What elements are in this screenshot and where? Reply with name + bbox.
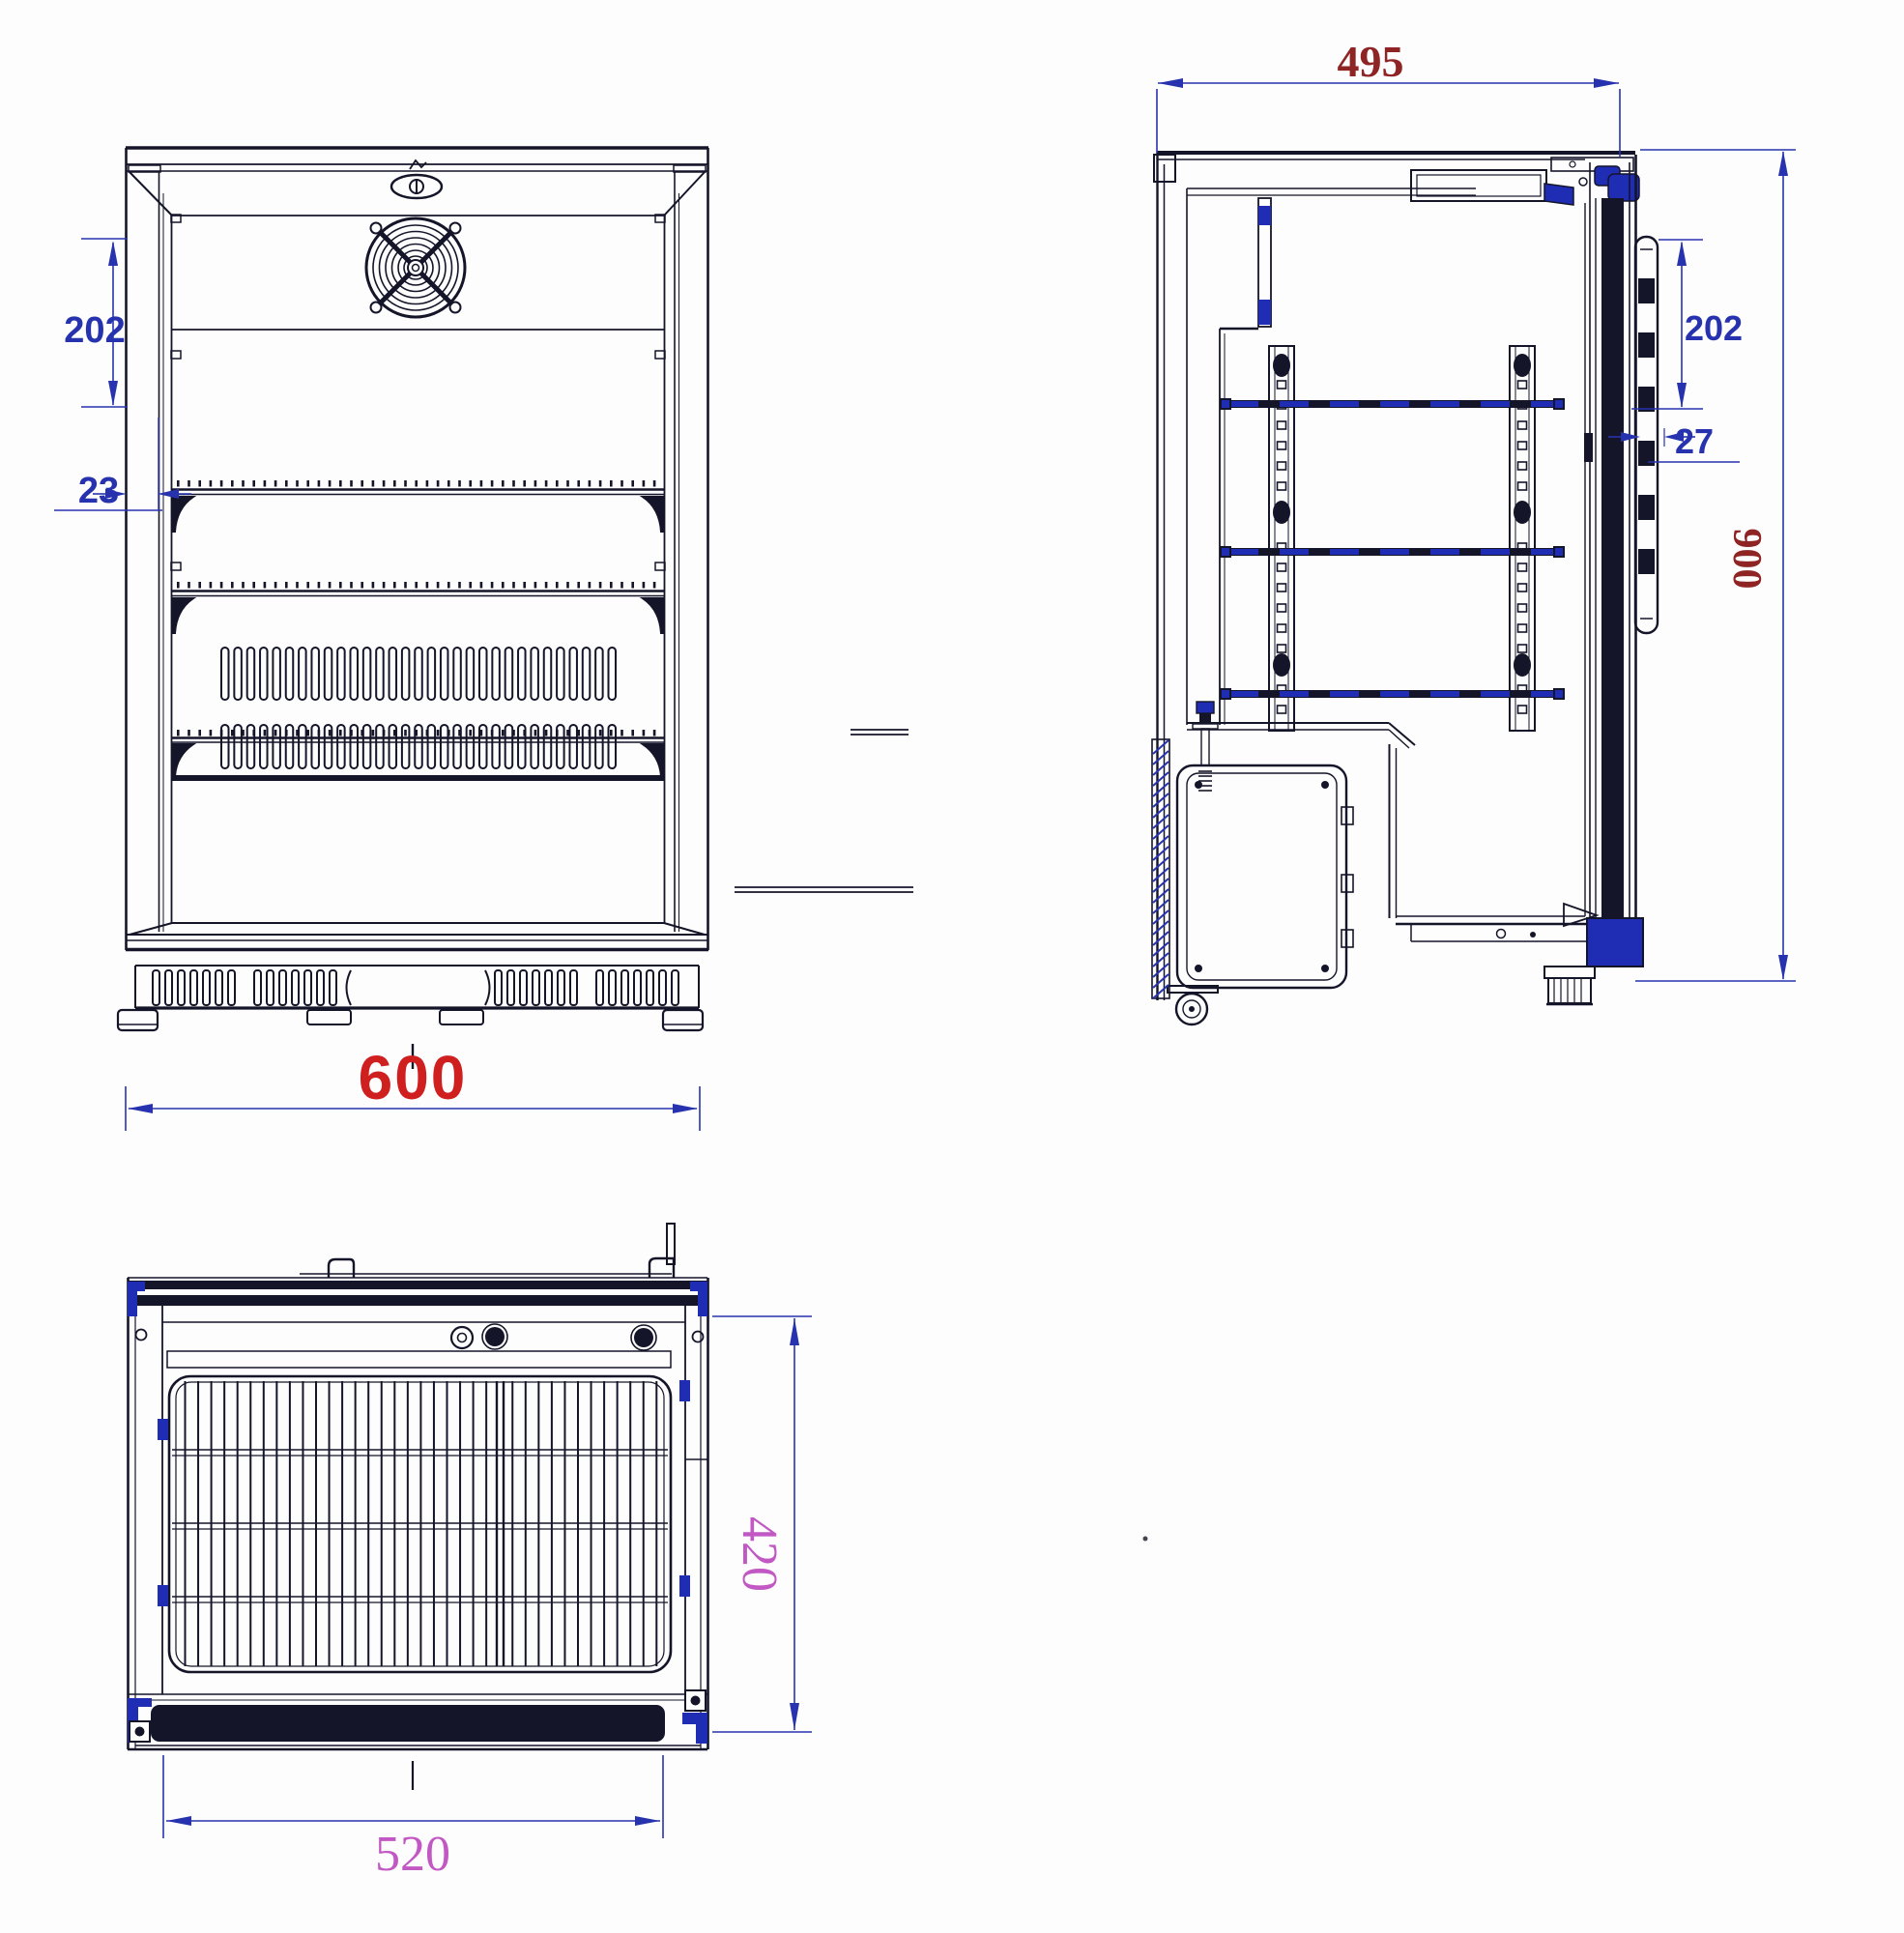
- wire-shelf-grid: [158, 1376, 690, 1672]
- side-depth-label: 495: [1284, 35, 1457, 87]
- front-handle-height-label: 202: [46, 309, 143, 352]
- stray-mark: [1143, 1537, 1148, 1542]
- front-width-label: 600: [306, 1044, 519, 1111]
- shelf-1: [172, 490, 665, 533]
- evaporator-plate: [1220, 198, 1271, 725]
- top-outline: [128, 1224, 708, 1749]
- rail-holes: [1274, 355, 1530, 713]
- side-cabinet-outline: [1154, 153, 1635, 1000]
- front-vent-slots: [221, 648, 616, 768]
- top-door-width-label: 520: [306, 1823, 519, 1885]
- compressor-compartment: [735, 702, 1643, 1024]
- side-shelves: [1221, 399, 1564, 699]
- fan-grille: [366, 218, 465, 317]
- technical-drawing-canvas: 202 23 600 495 202 27 900 420 520: [0, 0, 1904, 1933]
- side-door: [1564, 155, 1636, 926]
- hatch-lines: [1153, 740, 1168, 998]
- top-door-bar: [128, 1690, 707, 1749]
- side-handle-clearance-label: 27: [1643, 420, 1745, 463]
- front-handle-offset-label: 23: [50, 470, 147, 512]
- top-depth-label: 420: [709, 1504, 810, 1604]
- shelf-2: [172, 591, 665, 634]
- front-shelf-ticks: [177, 480, 655, 736]
- dim-side-495: [1157, 78, 1620, 157]
- door-lock: [391, 175, 442, 198]
- evaporator-fan-housing: [1411, 170, 1587, 205]
- top-view: [128, 1224, 1148, 1749]
- side-height-label: 900: [1706, 518, 1787, 599]
- line-art: [0, 0, 1904, 1933]
- side-view: [735, 153, 1658, 1024]
- side-handle-height-label: 202: [1660, 307, 1767, 350]
- kick-vent-slots: [153, 970, 678, 1005]
- top-screw-strip: [167, 1324, 671, 1368]
- front-view: [118, 148, 708, 1069]
